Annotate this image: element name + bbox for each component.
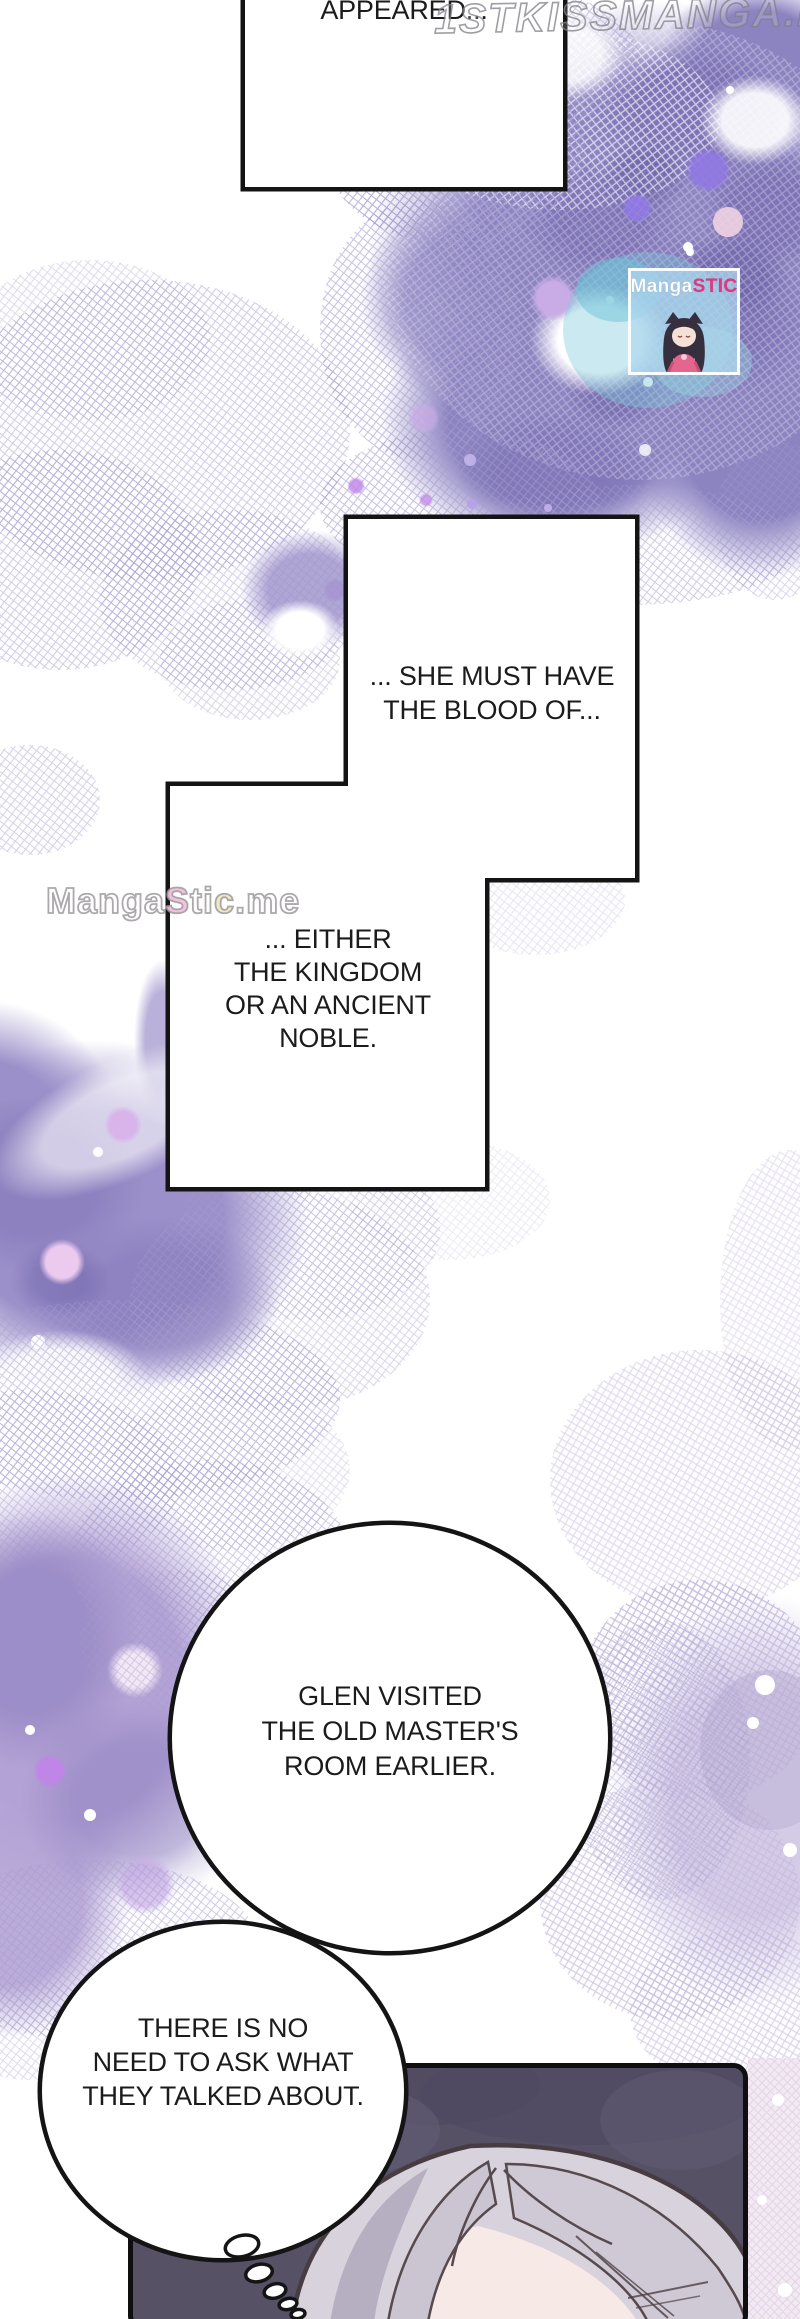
mangastic-badge: MangaSTIC <box>628 268 740 375</box>
dialogue-ask: THERE IS NO NEED TO ASK WHAT THEY TALKED… <box>25 2011 421 2113</box>
dialogue-noble: ... EITHER THE KINGDOM OR AN ANCIENT NOB… <box>172 923 484 1055</box>
badge-mascot-girl-icon <box>649 310 719 374</box>
webtoon-page: APPEARED... ... SHE MUST HAVE THE BLOOD … <box>0 0 800 2319</box>
watermark-site: MangaStic.me <box>46 880 300 922</box>
dialogue-glen: GLEN VISITED THE OLD MASTER'S ROOM EARLI… <box>190 1679 590 1784</box>
badge-logo-text: MangaSTIC <box>631 276 737 298</box>
dialogue-blood: ... SHE MUST HAVE THE BLOOD OF... <box>350 659 634 727</box>
